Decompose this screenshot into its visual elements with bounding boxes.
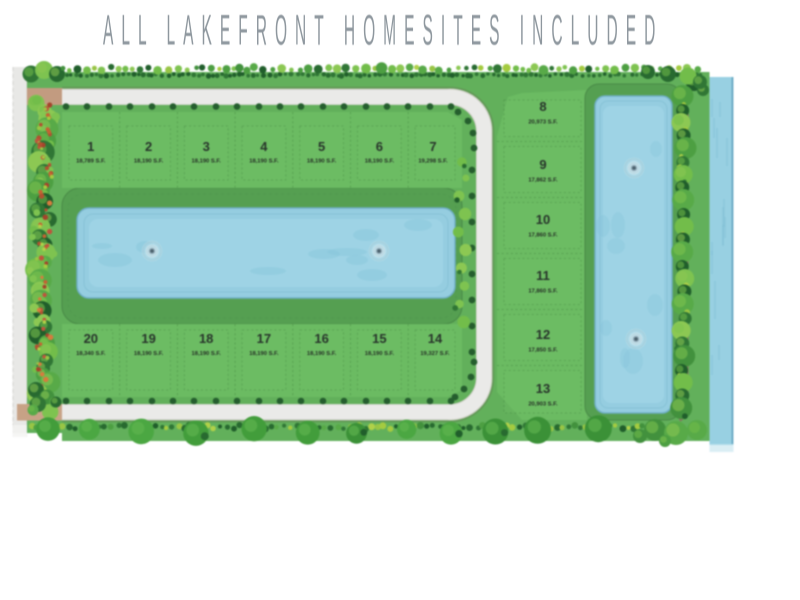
svg-text:5: 5 <box>318 139 325 154</box>
svg-text:18,789 S.F.: 18,789 S.F. <box>76 159 106 165</box>
svg-text:17,860 S.F.: 17,860 S.F. <box>528 289 558 295</box>
svg-text:18,190 S.F.: 18,190 S.F. <box>307 351 337 357</box>
svg-text:17,860 S.F.: 17,860 S.F. <box>528 233 558 239</box>
svg-text:18: 18 <box>199 331 213 346</box>
svg-text:20,973 S.F.: 20,973 S.F. <box>528 120 558 126</box>
svg-text:18,190 S.F.: 18,190 S.F. <box>134 351 164 357</box>
svg-text:16: 16 <box>314 331 328 346</box>
svg-text:3: 3 <box>203 139 210 154</box>
svg-text:18,190 S.F.: 18,190 S.F. <box>365 159 395 165</box>
svg-text:13: 13 <box>536 381 550 396</box>
svg-text:19,327 S.F.: 19,327 S.F. <box>420 351 450 357</box>
svg-text:10: 10 <box>536 212 550 227</box>
svg-text:18,190 S.F.: 18,190 S.F. <box>365 351 395 357</box>
svg-text:12: 12 <box>536 327 550 342</box>
svg-text:7: 7 <box>429 139 436 154</box>
svg-text:18,190 S.F.: 18,190 S.F. <box>192 351 222 357</box>
svg-text:17: 17 <box>257 331 271 346</box>
svg-text:18,190 S.F.: 18,190 S.F. <box>134 159 164 165</box>
svg-text:15: 15 <box>372 331 386 346</box>
svg-text:18,190 S.F.: 18,190 S.F. <box>307 159 337 165</box>
svg-text:17,850 S.F.: 17,850 S.F. <box>528 348 558 354</box>
svg-text:17,862 S.F.: 17,862 S.F. <box>528 178 558 184</box>
svg-text:20: 20 <box>84 331 98 346</box>
svg-text:9: 9 <box>539 157 546 172</box>
svg-text:18,190 S.F.: 18,190 S.F. <box>249 159 279 165</box>
svg-text:18,190 S.F.: 18,190 S.F. <box>192 159 222 165</box>
svg-text:1: 1 <box>87 139 94 154</box>
svg-text:4: 4 <box>260 139 268 154</box>
svg-text:18,190 S.F.: 18,190 S.F. <box>249 351 279 357</box>
svg-text:8: 8 <box>539 99 546 114</box>
svg-text:19: 19 <box>141 331 155 346</box>
svg-text:11: 11 <box>536 268 550 283</box>
svg-text:6: 6 <box>376 139 383 154</box>
svg-text:2: 2 <box>145 139 152 154</box>
svg-text:20,903 S.F.: 20,903 S.F. <box>528 402 558 408</box>
svg-text:19,298 S.F.: 19,298 S.F. <box>418 159 448 165</box>
svg-text:ALL LAKEFRONT HOMESITES INCLUD: ALL LAKEFRONT HOMESITES INCLUDED <box>103 6 663 54</box>
svg-text:14: 14 <box>428 331 443 346</box>
svg-text:18,340 S.F.: 18,340 S.F. <box>76 351 106 357</box>
